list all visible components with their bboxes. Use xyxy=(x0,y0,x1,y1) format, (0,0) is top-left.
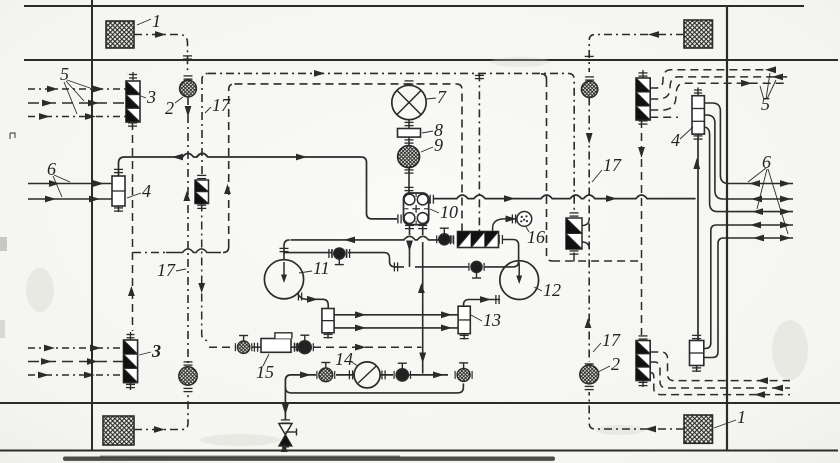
svg-text:17: 17 xyxy=(603,155,622,175)
svg-text:5: 5 xyxy=(60,64,69,84)
svg-text:7: 7 xyxy=(437,87,447,107)
svg-text:1: 1 xyxy=(152,11,161,31)
svg-text:15: 15 xyxy=(256,362,274,382)
svg-text:4: 4 xyxy=(142,181,151,201)
svg-text:12: 12 xyxy=(543,280,561,300)
svg-text:3: 3 xyxy=(151,341,161,361)
svg-text:9: 9 xyxy=(434,135,443,155)
svg-text:16: 16 xyxy=(527,227,545,247)
svg-text:13: 13 xyxy=(483,310,501,330)
svg-text:14: 14 xyxy=(335,349,353,369)
svg-text:3: 3 xyxy=(146,87,156,107)
svg-text:6: 6 xyxy=(762,152,771,172)
svg-text:5: 5 xyxy=(761,94,770,114)
svg-text:2: 2 xyxy=(165,98,174,118)
svg-text:17: 17 xyxy=(602,330,621,350)
svg-text:11: 11 xyxy=(313,258,330,278)
svg-text:17: 17 xyxy=(157,260,176,280)
svg-text:4: 4 xyxy=(671,130,680,150)
svg-text:1: 1 xyxy=(737,407,746,427)
svg-text:10: 10 xyxy=(440,202,458,222)
svg-text:2: 2 xyxy=(611,354,620,374)
svg-text:6: 6 xyxy=(47,159,56,179)
